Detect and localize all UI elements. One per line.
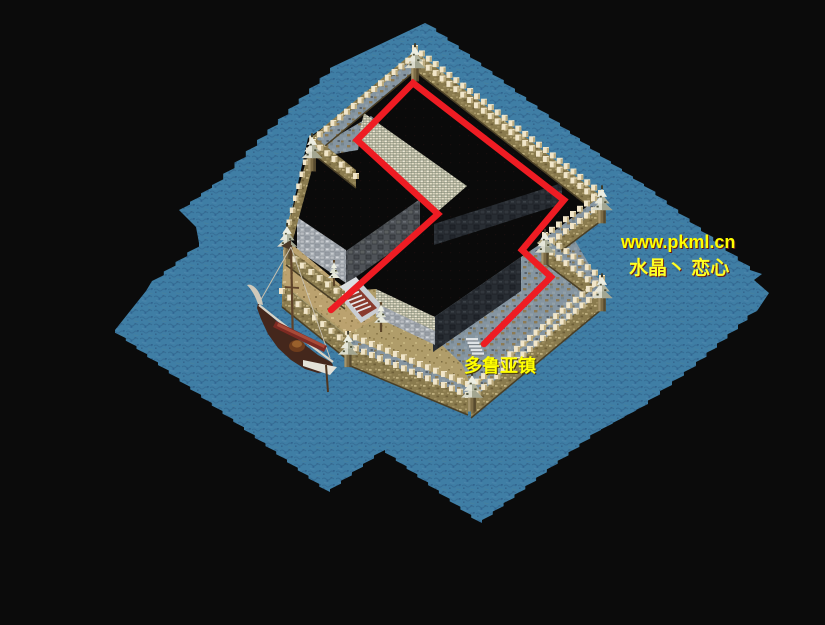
- svg-text:多鲁亚镇: 多鲁亚镇: [464, 355, 536, 376]
- svg-text:www.pkml.cn: www.pkml.cn: [620, 232, 735, 252]
- svg-text:水晶丶 恋心: 水晶丶 恋心: [629, 256, 729, 279]
